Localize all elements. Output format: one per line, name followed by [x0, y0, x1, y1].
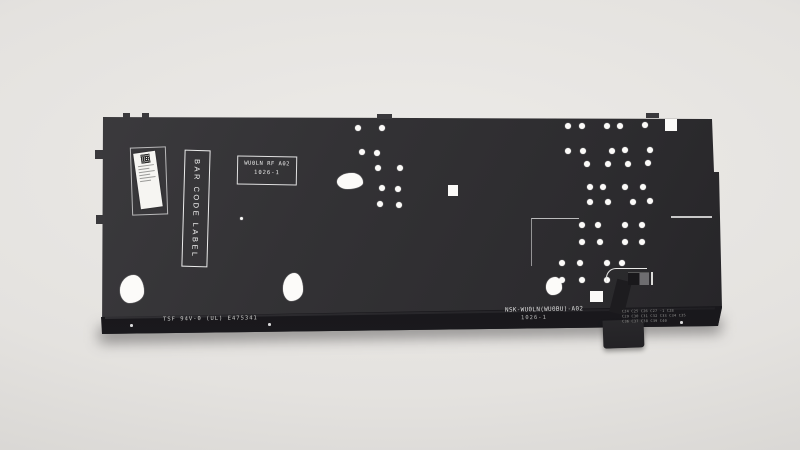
barcode-label-placement-box: BAR CODE LABEL	[181, 150, 210, 268]
screw-hole	[580, 148, 586, 154]
screw-hole	[377, 201, 383, 207]
edge-tab	[646, 113, 659, 118]
model-stamp-box: WU0LN RF A02 1026-1	[237, 155, 297, 185]
screw-hole	[622, 147, 628, 153]
screw-hole	[587, 199, 593, 205]
square-cutout	[448, 185, 458, 196]
screw-hole	[565, 123, 571, 129]
screw-hole	[642, 122, 648, 128]
pilot-hole	[240, 217, 243, 220]
screw-hole	[396, 202, 402, 208]
flex-cable-connector	[628, 272, 649, 285]
photo-stage: WU0LN RF A02 1026-1 BAR CODE LABEL TSF 9…	[0, 0, 800, 450]
screw-hole	[622, 184, 628, 190]
screw-hole	[579, 123, 585, 129]
screw-hole	[604, 123, 610, 129]
screw-hole	[375, 165, 381, 171]
screw-hole	[604, 260, 610, 266]
screw-hole	[639, 239, 645, 245]
scribe-right-line	[671, 216, 712, 218]
rivet-dot	[130, 324, 133, 327]
model-stamp-line1: WU0LN RF A02	[238, 160, 296, 167]
stabilizer-cutout	[337, 173, 363, 189]
screw-hole	[622, 222, 628, 228]
barcode-sticker-outline	[130, 146, 168, 215]
screw-hole	[597, 239, 603, 245]
screw-hole	[379, 125, 385, 131]
screw-hole	[647, 198, 653, 204]
rivet-dot	[680, 321, 683, 324]
screw-hole	[640, 184, 646, 190]
rivet-dot	[268, 323, 271, 326]
edge-tab	[95, 150, 104, 159]
stabilizer-cutout	[120, 275, 144, 303]
screw-hole	[645, 160, 651, 166]
screw-hole	[639, 222, 645, 228]
label-text-line	[140, 180, 151, 183]
screw-hole	[587, 184, 593, 190]
scribe-corner-line	[531, 218, 579, 266]
stabilizer-cutout	[546, 277, 562, 295]
screw-hole	[397, 165, 403, 171]
screw-hole	[359, 149, 365, 155]
edge-tab	[123, 113, 130, 118]
screw-hole	[600, 184, 606, 190]
screw-hole	[355, 125, 361, 131]
screw-hole	[617, 123, 623, 129]
label-text-line	[140, 176, 156, 179]
screw-hole	[622, 239, 628, 245]
edge-tab	[96, 215, 105, 224]
screw-hole	[619, 260, 625, 266]
screw-hole	[579, 277, 585, 283]
square-cutout	[665, 119, 677, 131]
model-stamp-line2: 1026-1	[238, 169, 296, 176]
screw-hole	[625, 161, 631, 167]
screw-hole	[395, 186, 401, 192]
screw-hole	[630, 199, 636, 205]
label-text-line	[138, 164, 154, 167]
edge-tab	[142, 113, 149, 118]
screw-hole	[374, 150, 380, 156]
screw-hole	[584, 161, 590, 167]
screw-hole	[605, 161, 611, 167]
screw-hole	[379, 185, 385, 191]
screw-hole	[647, 147, 653, 153]
part-number-marking: NSK-WU0LN(WU0BU)-A02	[505, 305, 583, 313]
component-reference-block: C24 C25 C26 C27 -1 C28 C29 C30 C31 C32 C…	[622, 308, 686, 324]
square-cutout	[590, 291, 603, 302]
edge-tab	[377, 114, 392, 119]
barcode-label-text: BAR CODE LABEL	[190, 159, 202, 259]
screw-hole	[595, 222, 601, 228]
screw-hole	[565, 148, 571, 154]
keyboard-backplate: WU0LN RF A02 1026-1 BAR CODE LABEL TSF 9…	[95, 110, 727, 355]
date-code-marking: 1026-1	[521, 315, 547, 321]
label-text-line	[139, 170, 155, 173]
screw-hole	[579, 239, 585, 245]
barcode-sticker	[133, 151, 163, 210]
scribe-tick	[651, 272, 653, 285]
screw-hole	[579, 222, 585, 228]
screw-hole	[605, 199, 611, 205]
screw-hole	[609, 148, 615, 154]
stabilizer-cutout	[283, 273, 303, 301]
qr-code-icon	[140, 154, 150, 164]
